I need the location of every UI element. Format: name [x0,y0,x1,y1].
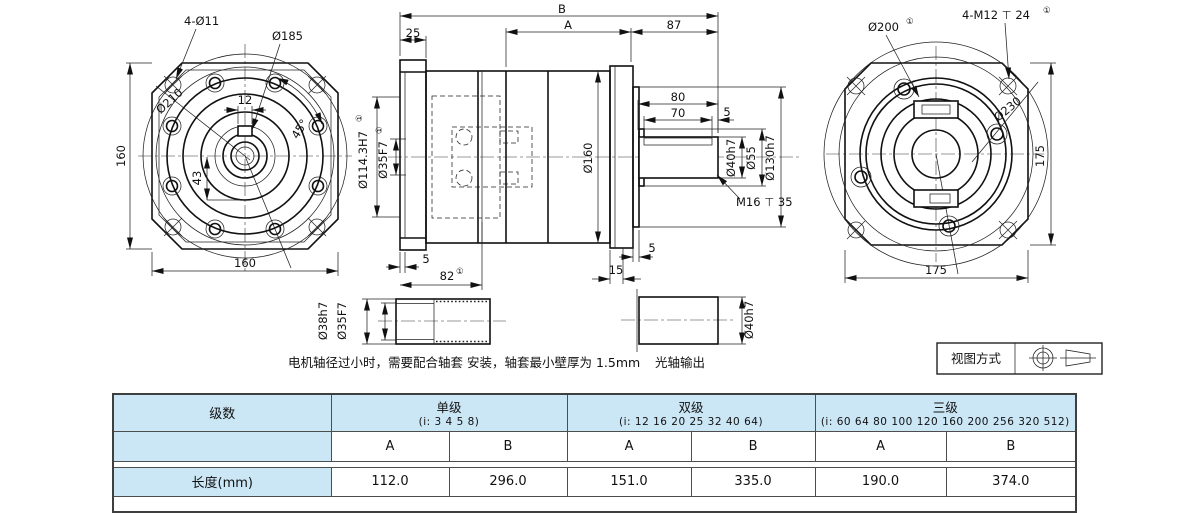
screw-hole [163,117,181,135]
table-header-row: 级数 单级 (i: 3 4 5 8) 双级 (i: 12 16 20 25 32… [113,394,1076,431]
dim-label-5-right: 5 [648,241,655,255]
col-b-header: B [691,431,815,461]
col-b-header: B [449,431,567,461]
dim-label-O35F7: Ø35F7 [376,141,390,179]
length-value: 151.0 [567,467,691,496]
group-name: 三级 [816,397,1076,416]
length-value: 374.0 [946,467,1076,496]
length-label-cell: 长度(mm) [113,467,331,496]
dim-label-M16: M16 ⊤ 35 [736,195,793,209]
tapped-hole [999,77,1017,95]
group-ratios: (i: 12 16 20 25 32 40 64) [568,416,815,428]
dim-label-width-175: 175 [925,263,947,277]
reference-diagonal [245,156,291,268]
group-double-stage: 双级 (i: 12 16 20 25 32 40 64) [567,394,815,431]
screw-hole [309,117,327,135]
empty-cell [113,431,331,461]
dim-label-87: 87 [667,18,682,32]
group-name: 单级 [332,397,567,416]
projection-symbol-icon [1029,345,1096,371]
dim-label-height-160: 160 [114,145,128,167]
dim-label-height-175: 175 [1033,145,1047,167]
dim-label-25: 25 [406,26,421,40]
dim-label-O38h7: Ø38h7 [316,302,330,340]
screw-hole [987,124,1007,144]
length-value: 296.0 [449,467,567,496]
dim-label-4xM12: 4-M12 ⊤ 24 [962,8,1030,22]
stage-header-cell: 级数 [113,394,331,431]
leader-4xO11 [176,29,196,79]
bolt-hole [308,218,326,236]
tapped-hole [847,77,865,95]
dim-label-O160: Ø160 [581,142,595,173]
dim-label-O40h7: Ø40h7 [724,139,738,177]
dim-label-O114: Ø114.3H7 [356,131,370,189]
footnote-mark: ① [355,114,365,122]
page: { "drawing": { "footnote": "①", "front":… [0,0,1185,503]
tapped-hole [999,221,1017,239]
col-a-header: A [331,431,449,461]
rear-view: Ø200 ① 4-M12 ⊤ 24 ① Ø230 175 175 [824,6,1056,283]
screw-hole [206,74,224,92]
cut-cell [113,496,1076,512]
length-value: 190.0 [815,467,946,496]
dim-label-O40h7: Ø40h7 [742,301,756,339]
shaft-outline [639,297,718,344]
motor-flange [400,60,426,250]
view-method-box: 视图方式 [937,343,1102,374]
screw-hole [309,177,327,195]
sleeve-detail: Ø38h7 Ø35F7 电机轴径过小时，需要配合轴套 安装，轴套最小壁厚为 1.… [288,299,640,370]
dim-label-43: 43 [190,171,204,186]
keyway [238,126,252,136]
dim-label-15: 15 [609,263,624,277]
footnote-mark: ① [456,267,464,277]
table-length-row: 长度(mm) 112.0 296.0 151.0 335.0 190.0 374… [113,467,1076,496]
group-name: 双级 [568,397,815,416]
dim-label-80: 80 [671,90,686,104]
bolt-hole [164,218,182,236]
length-value: 112.0 [331,467,449,496]
group-ratios: (i: 60 64 80 100 120 160 200 256 320 512… [816,416,1076,428]
dim-label-5-left: 5 [422,252,429,266]
view-method-label: 视图方式 [951,351,1002,366]
tapped-hole [847,221,865,239]
footnote-mark: ① [375,126,385,134]
side-view: B A 25 87 80 70 5 Ø160 Ø114.3H7 ① Ø35F7 … [355,2,800,290]
sleeve-outline [396,299,490,344]
dim-label-B: B [558,2,566,16]
front-view: 4-Ø11 Ø185 Ø210 12 43 160 160 45° [114,14,352,276]
dim-label-keyway-width: 12 [238,93,253,107]
engineering-drawing: 4-Ø11 Ø185 Ø210 12 43 160 160 45° [0,0,1185,392]
dim-label-O35F7: Ø35F7 [335,302,349,340]
bolt-hole [308,76,326,94]
dim-label-bolt-holes: 4-Ø11 [184,14,219,28]
group-single-stage: 单级 (i: 3 4 5 8) [331,394,567,431]
output-shaft [639,137,718,178]
spec-table: 级数 单级 (i: 3 4 5 8) 双级 (i: 12 16 20 25 32… [112,393,1077,513]
footnote-mark: ① [1043,6,1051,16]
plain-shaft-detail: Ø40h7 光轴输出 [621,289,756,370]
col-a-header: A [815,431,946,461]
dim-label-45deg: 45° [288,117,311,142]
length-value: 335.0 [691,467,815,496]
screw-hole [163,177,181,195]
group-ratios: (i: 3 4 5 8) [332,416,567,428]
screw-hole [266,74,284,92]
dim-label-5-top: 5 [723,105,730,119]
dim-label-width-160: 160 [234,256,256,270]
table-ab-row: A B A B A B [113,431,1076,461]
dim-label-70: 70 [671,106,686,120]
screw-hole [206,220,224,238]
sleeve-note: 电机轴径过小时，需要配合轴套 安装，轴套最小壁厚为 1.5mm [288,355,640,370]
table-cut-row [113,496,1076,512]
footnote-mark: ① [906,17,914,27]
reference-diagonal [936,154,958,274]
dim-label-A: A [564,18,572,32]
clamp-slot-bottom [914,190,958,207]
clamp-slot-top [914,101,958,118]
shaft-caption: 光轴输出 [655,355,705,370]
dim-label-O200: Ø200 [868,20,899,34]
dim-label-O55: Ø55 [744,146,758,170]
dim-label-d185: Ø185 [272,29,303,43]
col-b-header: B [946,431,1076,461]
col-a-header: A [567,431,691,461]
dim-label-82: 82 [440,269,455,283]
group-triple-stage: 三级 (i: 60 64 80 100 120 160 200 256 320 … [815,394,1076,431]
leader-m12 [1005,23,1009,79]
dim-label-O130h7: Ø130h7 [763,135,777,181]
